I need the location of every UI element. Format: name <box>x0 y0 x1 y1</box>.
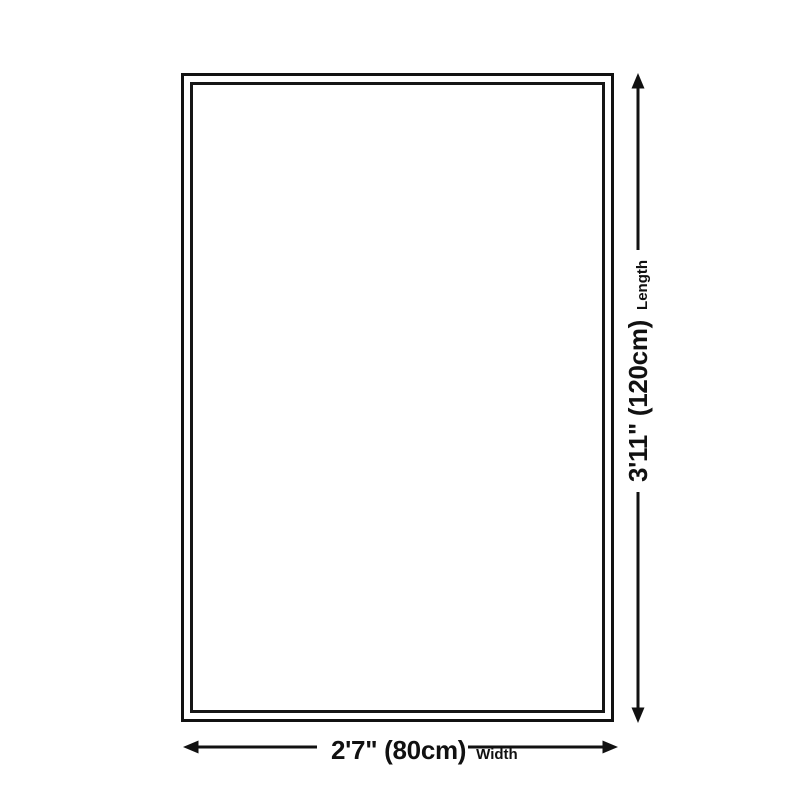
width-caption: Width <box>476 746 518 763</box>
arrow-down-icon <box>632 708 645 724</box>
arrow-up-icon <box>632 73 645 89</box>
product-outline-outer <box>181 73 614 722</box>
size-diagram: 3'11" (120cm) Length 2'7" (80cm) Width <box>0 0 800 800</box>
width-value: 2'7" (80cm) <box>331 735 466 766</box>
product-outline-inner <box>190 82 605 713</box>
width-dimension-label: 2'7" (80cm) Width <box>331 735 518 769</box>
length-value: 3'11" (120cm) <box>623 320 654 482</box>
length-dimension-label: 3'11" (120cm) Length <box>623 250 659 492</box>
length-caption: Length <box>634 260 651 310</box>
arrow-right-icon <box>603 741 619 754</box>
arrow-left-icon <box>183 741 199 754</box>
